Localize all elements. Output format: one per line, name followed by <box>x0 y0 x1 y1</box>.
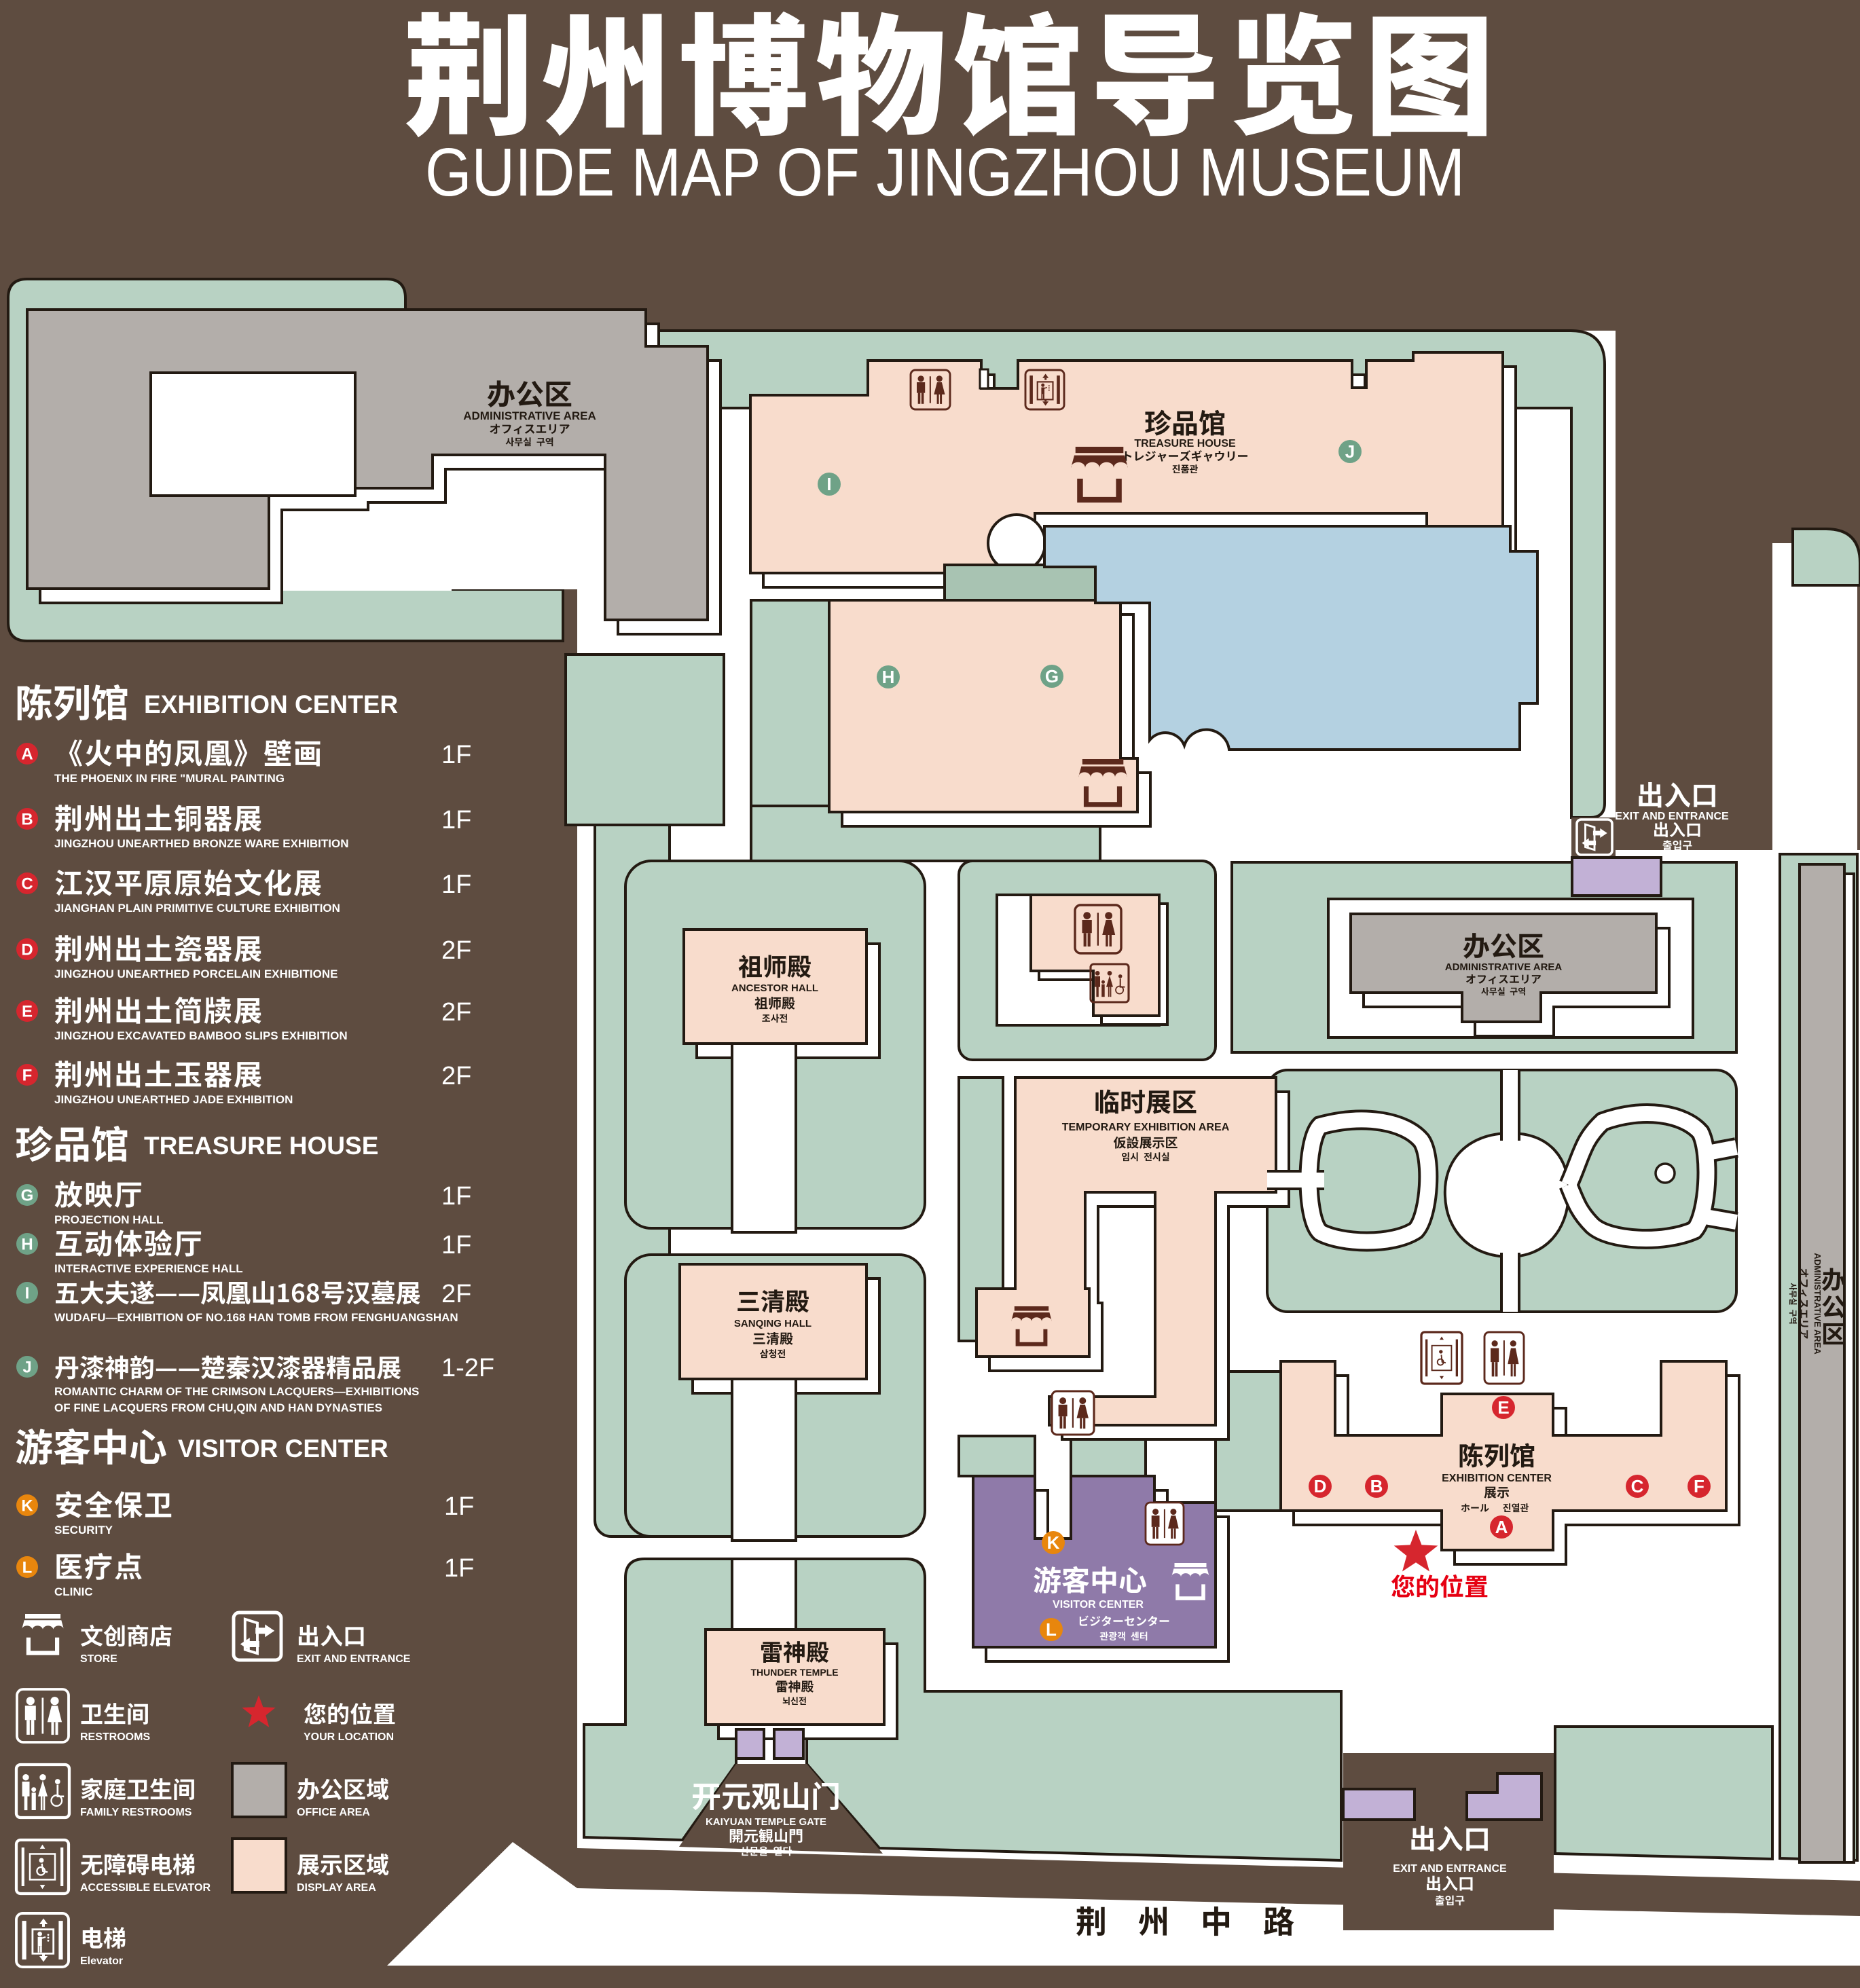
svg-text:DISPLAY AREA: DISPLAY AREA <box>297 1882 376 1894</box>
svg-text:INTERACTIVE EXPERIENCE HALL: INTERACTIVE EXPERIENCE HALL <box>54 1262 243 1275</box>
svg-text:1F: 1F <box>441 1182 471 1211</box>
svg-text:H: H <box>882 667 895 687</box>
svg-text:L: L <box>1046 1619 1057 1640</box>
svg-text:K: K <box>1047 1532 1060 1553</box>
svg-text:ACCESSIBLE ELEVATOR: ACCESSIBLE ELEVATOR <box>80 1882 211 1894</box>
svg-text:TREASURE HOUSE: TREASURE HOUSE <box>144 1132 378 1160</box>
svg-text:E: E <box>22 1003 33 1021</box>
svg-text:KAIYUAN TEMPLE GATE: KAIYUAN TEMPLE GATE <box>706 1816 826 1828</box>
svg-text:GUIDE MAP OF JINGZHOU MUSEUM: GUIDE MAP OF JINGZHOU MUSEUM <box>425 134 1465 210</box>
svg-text:H: H <box>21 1236 33 1254</box>
svg-text:ADMINISTRATIVE AREA: ADMINISTRATIVE AREA <box>1812 1253 1823 1355</box>
svg-text:C: C <box>1631 1476 1644 1496</box>
svg-text:1F: 1F <box>444 1492 474 1521</box>
svg-text:OF FINE LACQUERS FROM CHU,QIN: OF FINE LACQUERS FROM CHU,QIN AND HAN DY… <box>54 1401 382 1414</box>
svg-text:EXHIBITION CENTER: EXHIBITION CENTER <box>1442 1473 1552 1484</box>
svg-text:EXIT AND ENTRANCE: EXIT AND ENTRANCE <box>297 1653 411 1665</box>
svg-text:I: I <box>826 474 831 494</box>
svg-text:TEMPORARY EXHIBITION AREA: TEMPORARY EXHIBITION AREA <box>1062 1122 1230 1133</box>
svg-text:SECURITY: SECURITY <box>54 1524 113 1536</box>
svg-text:JINGZHOU EXCAVATED BAMBOO SLIP: JINGZHOU EXCAVATED BAMBOO SLIPS EXHIBITI… <box>54 1029 348 1042</box>
svg-text:2F: 2F <box>441 1062 471 1090</box>
svg-text:TREASURE HOUSE: TREASURE HOUSE <box>1134 438 1236 449</box>
svg-text:D: D <box>1314 1476 1327 1496</box>
svg-text:D: D <box>21 941 33 959</box>
svg-text:1F: 1F <box>441 741 471 769</box>
svg-text:WUDAFU—EXHIBITION OF NO.168 HA: WUDAFU—EXHIBITION OF NO.168 HAN TOMB FRO… <box>54 1311 458 1324</box>
svg-text:ANCESTOR HALL: ANCESTOR HALL <box>731 982 818 994</box>
svg-text:2F: 2F <box>441 936 471 965</box>
svg-text:2F: 2F <box>441 998 471 1027</box>
svg-text:EXIT AND ENTRANCE: EXIT AND ENTRANCE <box>1615 811 1729 822</box>
svg-text:VISITOR CENTER: VISITOR CENTER <box>1053 1599 1144 1610</box>
svg-text:CLINIC: CLINIC <box>54 1585 93 1598</box>
svg-text:ADMINISTRATIVE AREA: ADMINISTRATIVE AREA <box>463 409 596 422</box>
svg-text:K: K <box>21 1497 33 1515</box>
svg-text:OFFICE AREA: OFFICE AREA <box>297 1807 370 1818</box>
svg-text:B: B <box>1370 1476 1383 1496</box>
svg-text:2F: 2F <box>441 1280 471 1308</box>
svg-text:F: F <box>22 1067 33 1085</box>
svg-text:1F: 1F <box>441 1231 471 1259</box>
svg-text:C: C <box>21 875 33 894</box>
svg-text:FAMILY RESTROOMS: FAMILY RESTROOMS <box>80 1807 192 1818</box>
svg-text:I: I <box>25 1285 30 1303</box>
svg-text:VISITOR CENTER: VISITOR CENTER <box>178 1435 388 1462</box>
svg-text:F: F <box>1694 1476 1704 1496</box>
svg-text:ADMINISTRATIVE AREA: ADMINISTRATIVE AREA <box>1445 961 1563 973</box>
svg-text:Elevator: Elevator <box>80 1955 123 1967</box>
svg-text:YOUR LOCATION: YOUR LOCATION <box>304 1731 394 1743</box>
svg-text:STORE: STORE <box>80 1653 117 1665</box>
svg-text:THUNDER TEMPLE: THUNDER TEMPLE <box>750 1667 838 1678</box>
svg-text:JINGZHOU UNEARTHED PORCELAIN E: JINGZHOU UNEARTHED PORCELAIN EXHIBITIONE <box>54 968 338 980</box>
svg-text:E: E <box>1497 1397 1509 1418</box>
svg-text:JINGZHOU UNEARTHED BRONZE WARE: JINGZHOU UNEARTHED BRONZE WARE EXHIBITIO… <box>54 837 349 850</box>
svg-text:A: A <box>1495 1517 1508 1537</box>
svg-text:THE PHOENIX IN FIRE "MURAL PAI: THE PHOENIX IN FIRE "MURAL PAINTING <box>54 772 285 785</box>
svg-text:ROMANTIC CHARM OF THE CRIMSON: ROMANTIC CHARM OF THE CRIMSON LACQUERS—E… <box>54 1385 419 1398</box>
svg-text:J: J <box>22 1359 31 1377</box>
svg-text:G: G <box>1045 666 1059 686</box>
svg-text:1F: 1F <box>444 1554 474 1583</box>
svg-text:JIANGHAN PLAIN PRIMITIVE CULTU: JIANGHAN PLAIN PRIMITIVE CULTURE EXHIBIT… <box>54 902 340 915</box>
svg-text:EXHIBITION CENTER: EXHIBITION CENTER <box>144 691 398 718</box>
svg-text:JINGZHOU UNEARTHED JADE EXHIBI: JINGZHOU UNEARTHED JADE EXHIBITION <box>54 1093 293 1106</box>
svg-text:J: J <box>1345 441 1355 462</box>
svg-text:A: A <box>21 745 33 764</box>
svg-text:G: G <box>21 1187 34 1205</box>
svg-text:SANQING HALL: SANQING HALL <box>734 1318 812 1329</box>
svg-text:1-2F: 1-2F <box>441 1354 494 1382</box>
svg-text:1F: 1F <box>441 870 471 899</box>
svg-text:RESTROOMS: RESTROOMS <box>80 1731 150 1743</box>
svg-text:PROJECTION HALL: PROJECTION HALL <box>54 1213 164 1226</box>
svg-text:EXIT AND ENTRANCE: EXIT AND ENTRANCE <box>1393 1863 1507 1875</box>
svg-text:1F: 1F <box>441 806 471 834</box>
svg-text:L: L <box>22 1559 33 1577</box>
svg-text:B: B <box>21 811 33 829</box>
